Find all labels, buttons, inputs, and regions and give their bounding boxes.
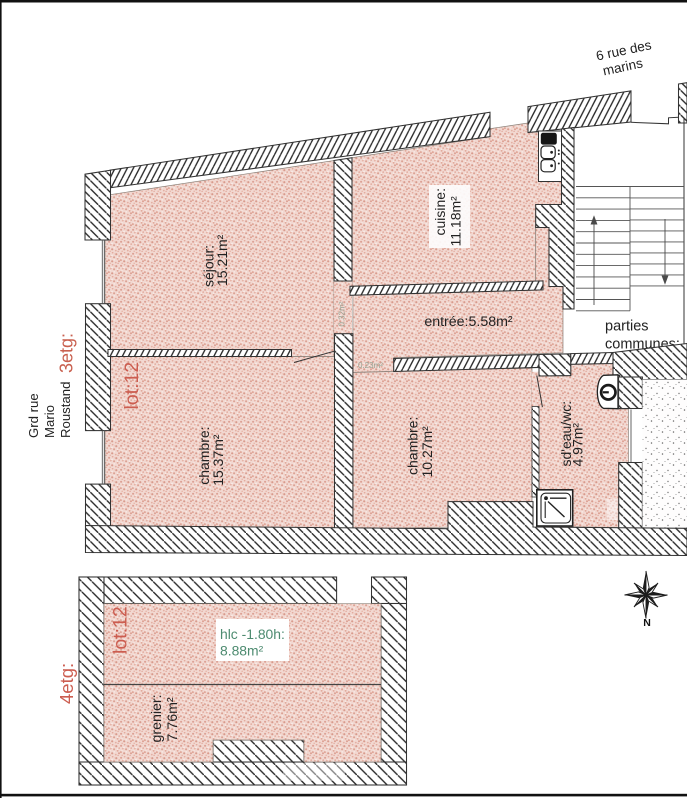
- svg-text:8.88m²: 8.88m²: [220, 642, 264, 658]
- svg-text:Roustand: Roustand: [58, 382, 73, 438]
- svg-text:4.97m²: 4.97m²: [569, 423, 585, 467]
- svg-text:hlc -1.80h:: hlc -1.80h:: [220, 626, 285, 642]
- svg-text:parties: parties: [605, 319, 649, 335]
- svg-text:10.27m²: 10.27m²: [419, 426, 435, 478]
- svg-text:lot:12: lot:12: [121, 362, 143, 410]
- svg-text:15.37m²: 15.37m²: [210, 434, 226, 486]
- svg-text:chambre:: chambre:: [404, 417, 420, 475]
- svg-text:3etg:: 3etg:: [57, 333, 77, 373]
- svg-text:4etg:: 4etg:: [56, 663, 77, 704]
- svg-text:15.21m²: 15.21m²: [214, 234, 230, 286]
- svg-text:N: N: [643, 617, 651, 629]
- svg-text:Mario: Mario: [42, 405, 57, 438]
- svg-text:7.76m²: 7.76m²: [165, 697, 181, 741]
- svg-text:grenier:: grenier:: [149, 694, 165, 742]
- svg-text:lot:12: lot:12: [110, 606, 132, 654]
- svg-text:Grd rue: Grd rue: [26, 393, 41, 438]
- svg-text:cuisine:: cuisine:: [432, 188, 448, 235]
- svg-text:0.32m²: 0.32m²: [338, 301, 347, 326]
- svg-text:0.23m²: 0.23m²: [358, 361, 383, 370]
- svg-text:11.18m²: 11.18m²: [448, 196, 464, 247]
- svg-text:entrée:5.58m²: entrée:5.58m²: [424, 314, 513, 330]
